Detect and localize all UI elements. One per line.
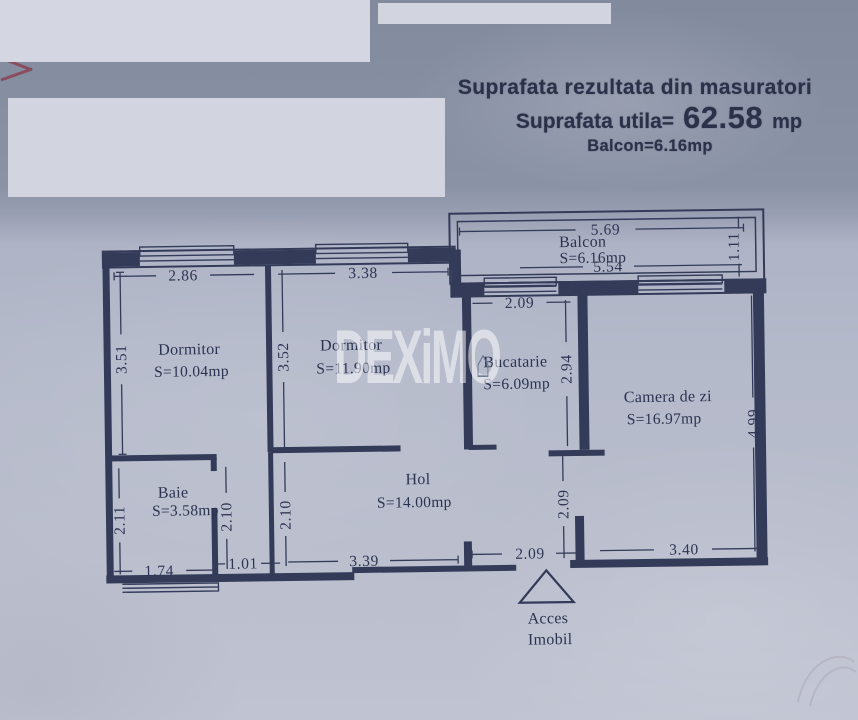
room-living-name: Camera de zi: [624, 388, 712, 406]
access-label-line2: Imobil: [528, 631, 573, 649]
watermark-text: DEXiM: [334, 320, 466, 396]
bath-window-sill: [122, 583, 218, 592]
redaction-box-top-left: [0, 0, 370, 62]
dim-kitchen-height: 2.94: [558, 354, 575, 384]
room-hall-name: Hol: [405, 471, 430, 488]
wall-bedroom2-kitchen: [456, 250, 457, 297]
dim-hall-width: 3.39: [349, 553, 379, 570]
wall-bath-top: [109, 457, 217, 459]
wall-kitchen-bottom-stub: [549, 453, 605, 454]
dim-bath-width: 1.74: [144, 563, 174, 580]
dim-bedroom1-width: 2.86: [168, 267, 198, 284]
wall-bottom-living: [570, 561, 768, 564]
wall-left: [106, 255, 111, 583]
room-bath-name: Baie: [158, 484, 189, 501]
dim-kitchen-width: 2.09: [505, 295, 535, 312]
redaction-box-top-middle: [378, 3, 611, 24]
scanned-floor-plan-page: Suprafata rezultata din masuratori Supra…: [0, 0, 858, 720]
dim-bath-right-height: 2.10: [218, 502, 235, 532]
deximo-watermark: DEXiM O ⌂: [334, 320, 499, 404]
dim-living-width: 3.40: [669, 541, 699, 558]
access-label-line1: Acces: [528, 610, 569, 628]
dim-hall-right-height: 2.09: [555, 489, 572, 519]
dim-hall-left-height: 2.10: [277, 500, 294, 530]
wall-hall-top: [271, 448, 401, 450]
wall-hall-living: [579, 516, 580, 564]
access-triangle-icon: [519, 570, 573, 603]
wall-between-bedrooms: [268, 265, 271, 452]
redaction-box-left: [8, 98, 445, 197]
dim-bedroom1-height: 3.51: [113, 344, 130, 374]
dim-living-height: 4.99: [745, 409, 762, 439]
house-icon: ⌂: [476, 344, 491, 384]
room-balcony-name: Balcon: [559, 234, 606, 252]
room-bedroom1-area: S=10.04mp: [154, 363, 229, 381]
watermark-o: O ⌂: [466, 320, 499, 396]
wall-lobby-right: [271, 452, 273, 577]
dim-balcony-right: 1.11: [726, 232, 743, 261]
wall-kitchen-right: [582, 295, 584, 450]
floor-plan: 5.69 Balcon S=6.16mp 5.54 1.11 2.86 3.38…: [101, 209, 771, 654]
dim-bedroom2-width: 3.38: [348, 265, 378, 282]
dim-balcony-bottom: 5.54: [593, 258, 623, 275]
room-living-area: S=16.97mp: [627, 410, 702, 428]
dim-bath-height: 2.11: [111, 506, 128, 535]
dim-entry-width: 2.09: [515, 545, 545, 562]
faint-scribble: [798, 657, 856, 706]
room-hall-area: S=14.00mp: [377, 494, 452, 512]
dim-line-balcony-bottom: [520, 265, 742, 268]
room-bath-area: S=3.58mp: [152, 502, 219, 520]
room-bedroom1-name: Dormitor: [158, 341, 221, 359]
dim-bedroom2-height: 3.52: [275, 342, 292, 372]
wall-bottom-bath: [106, 576, 354, 579]
dim-lobby-width: 1.01: [228, 555, 258, 572]
